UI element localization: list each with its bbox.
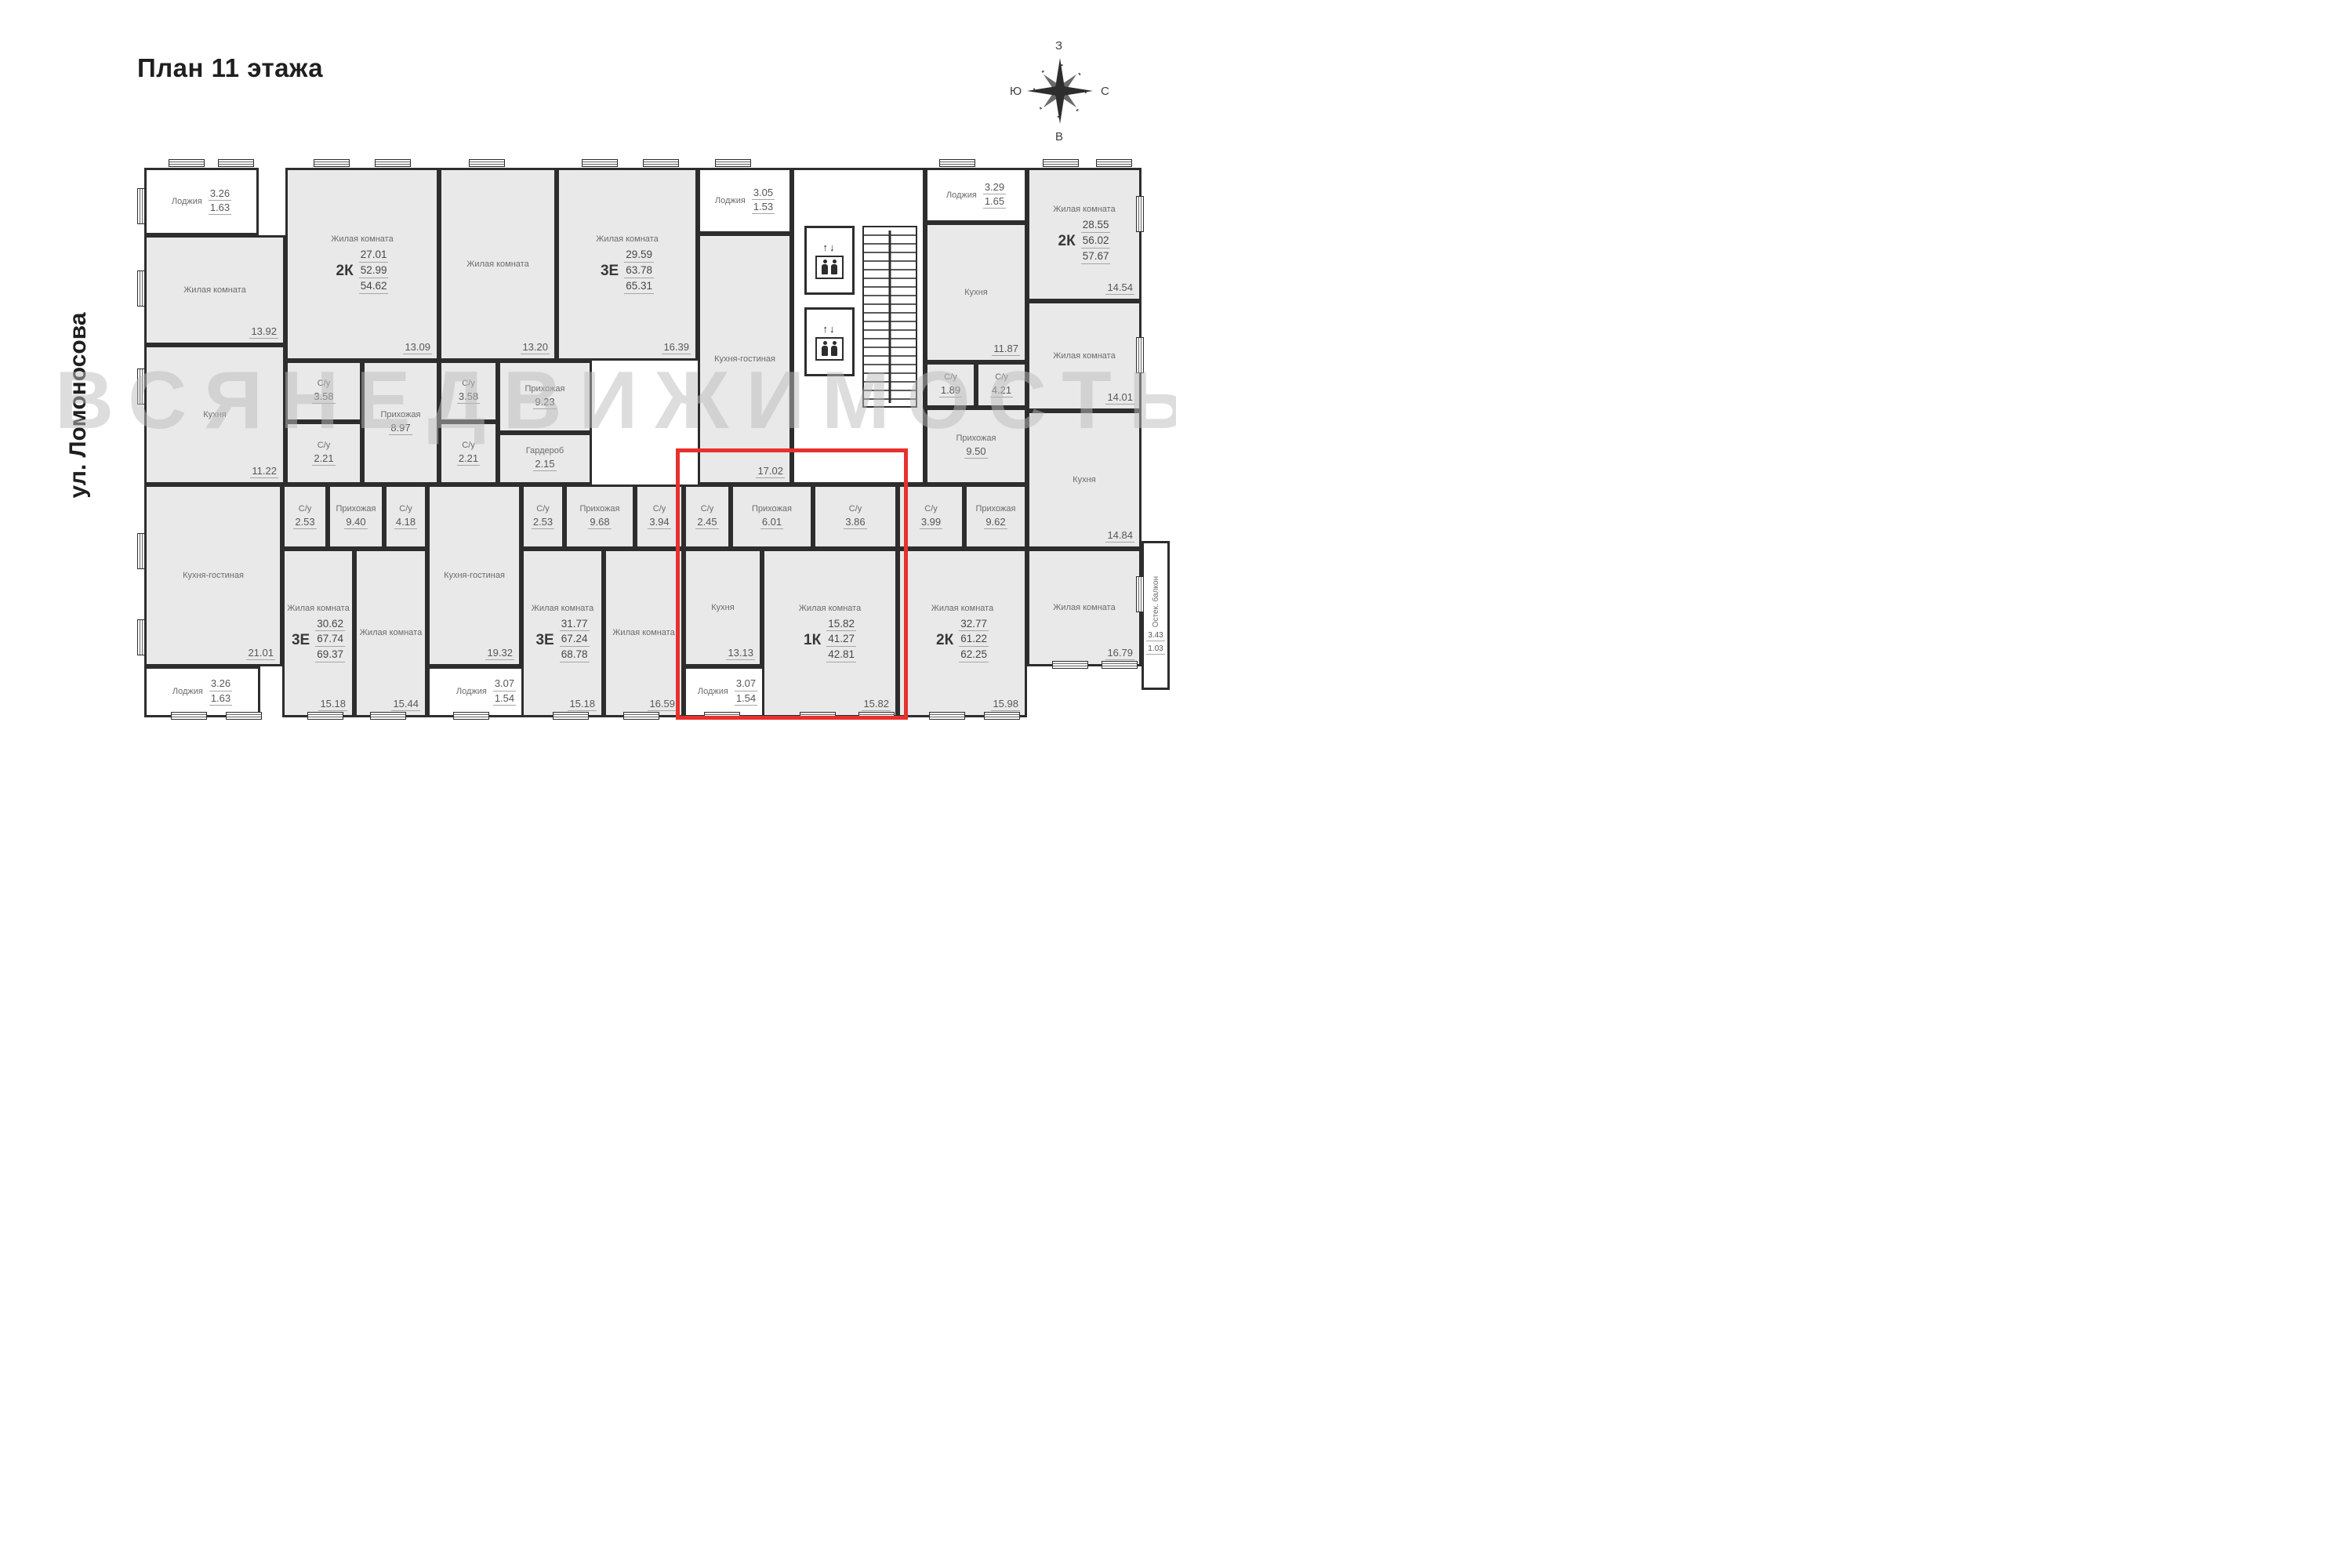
apt-e-hall: Прихожая 9.40: [328, 485, 384, 549]
window-icon: [1136, 337, 1144, 373]
apt-h-living2: Жилая комната 16.79: [1027, 549, 1142, 666]
apt-f-living1: Жилая комната 3Е 31.77 67.24 68.78 15.18: [521, 549, 604, 717]
window-icon: [218, 159, 254, 167]
apt-b-hall: Прихожая 9.23: [498, 361, 592, 433]
window-icon: [370, 712, 406, 720]
apt-a-loggia: Лоджия 3.261.63: [144, 168, 259, 235]
window-icon: [307, 712, 343, 720]
compass-icon: [1025, 56, 1094, 125]
apt-d-bath2: С/у 4.21: [976, 362, 1027, 408]
floor-plan-canvas: План 11 этажа ул. Ломоносова ВСЯНЕДВИЖИМ…: [0, 0, 1176, 784]
window-icon: [169, 159, 205, 167]
compass-label-south: Ю: [1010, 85, 1022, 98]
window-icon: [582, 159, 618, 167]
window-icon: [643, 159, 679, 167]
window-icon: [1052, 661, 1088, 669]
apt-h-balcony: Остек. балкон 3.43 1.03: [1142, 541, 1170, 690]
page-title: План 11 этажа: [137, 53, 323, 83]
apt-h-kitchen: Кухня 14.84: [1027, 411, 1142, 549]
apt-e-kitchen: Кухня-гостиная 21.01: [144, 485, 282, 666]
window-icon: [1136, 576, 1144, 612]
window-icon: [715, 159, 751, 167]
apt-d-hall: Прихожая 9.50: [925, 408, 1027, 485]
window-icon: [929, 712, 965, 720]
apt-f-living2: Жилая комната 16.59: [604, 549, 684, 717]
apt-b-living1: Жилая комната 13.20: [439, 168, 557, 361]
apt-a-bath1: С/у 3.58: [285, 361, 362, 422]
apt-b-loggia: Лоджия 3.051.53: [698, 168, 792, 234]
window-icon: [939, 159, 975, 167]
apt-e-living2: Жилая комната 15.44: [354, 549, 427, 717]
person-icon: [831, 341, 837, 357]
window-icon: [137, 619, 145, 655]
compass-label-north: С: [1101, 85, 1109, 98]
apt-b-type-label: 3Е 29.59 63.78 65.31: [601, 249, 654, 294]
window-icon: [1043, 159, 1079, 167]
apt-d-kitchen: Кухня 11.87: [925, 223, 1027, 362]
apt-h-type-label: 2К 32.77 61.22 62.25: [936, 619, 989, 663]
window-icon: [226, 712, 262, 720]
apt-e-living1: Жилая комната 3Е 30.62 67.74 69.37 15.18: [282, 549, 354, 717]
street-label: ул. Ломоносова: [65, 288, 92, 523]
window-icon: [137, 368, 145, 405]
apt-e-loggia: Лоджия 3.261.63: [144, 666, 260, 717]
apt-e-bath2: С/у 4.18: [384, 485, 427, 549]
compass-label-east: В: [1055, 130, 1063, 143]
stairs-icon: [862, 226, 917, 408]
apt-e-type-label: 3Е 30.62 67.74 69.37: [292, 619, 345, 663]
apt-b-living2: Жилая комната 3Е 29.59 63.78 65.31 16.39: [557, 168, 698, 361]
apt-h-hall: Прихожая 9.62: [964, 485, 1027, 549]
apt-f-type-label: 3Е 31.77 67.24 68.78: [535, 619, 589, 663]
window-icon: [1136, 196, 1144, 232]
window-icon: [137, 188, 145, 224]
window-icon: [553, 712, 589, 720]
apt-b-kitchen: Кухня-гостиная 17.02: [698, 234, 792, 485]
apt-h-living1: Жилая комната 2К 32.77 61.22 62.25 15.98: [898, 549, 1027, 717]
apt-b-bath2: С/у 2.21: [439, 422, 498, 485]
apt-a-type-label: 2К 27.01 52.99 54.62: [336, 249, 389, 294]
apt-e-bath1: С/у 2.53: [282, 485, 328, 549]
apt-d-living1: Жилая комната 2К 28.55 56.02 57.67 14.54: [1027, 168, 1142, 301]
window-icon: [137, 270, 145, 307]
person-icon: [822, 260, 828, 275]
apt-d-living2: Жилая комната 14.01: [1027, 301, 1142, 411]
apt-b-bath1: С/у 3.58: [439, 361, 498, 422]
person-icon: [822, 341, 828, 357]
window-icon: [314, 159, 350, 167]
apt-f-hall: Прихожая 9.68: [564, 485, 635, 549]
apt-a-kitchen: Кухня 11.22: [144, 345, 285, 485]
window-icon: [623, 712, 659, 720]
apt-f-kitchen: Кухня-гостиная 19.32: [427, 485, 521, 666]
apt-a-bath2: С/у 2.21: [285, 422, 362, 485]
window-icon: [453, 712, 489, 720]
apt-d-loggia: Лоджия 3.291.65: [925, 168, 1027, 223]
window-icon: [984, 712, 1020, 720]
apt-d-bath1: С/у 1.89: [925, 362, 976, 408]
window-icon: [1096, 159, 1132, 167]
window-icon: [171, 712, 207, 720]
elevator-icon: ↑↓: [804, 307, 855, 376]
apt-a-hall: Прихожая 8.97: [362, 361, 439, 485]
compass-label-west: З: [1055, 39, 1062, 53]
apt-b-wardrobe: Гардероб 2.15: [498, 433, 592, 485]
window-icon: [469, 159, 505, 167]
window-icon: [375, 159, 411, 167]
apt-a-living1: Жилая комната 13.92: [144, 235, 285, 345]
window-icon: [137, 533, 145, 569]
elevator-icon: ↑↓: [804, 226, 855, 295]
apt-f-bath1: С/у 2.53: [521, 485, 564, 549]
apt-a-living2: Жилая комната 2К 27.01 52.99 54.62 13.09: [285, 168, 439, 361]
apt-d-type-label: 2К 28.55 56.02 57.67: [1058, 220, 1111, 264]
highlighted-apartment-outline: [676, 448, 908, 720]
window-icon: [1102, 661, 1138, 669]
person-icon: [831, 260, 837, 275]
